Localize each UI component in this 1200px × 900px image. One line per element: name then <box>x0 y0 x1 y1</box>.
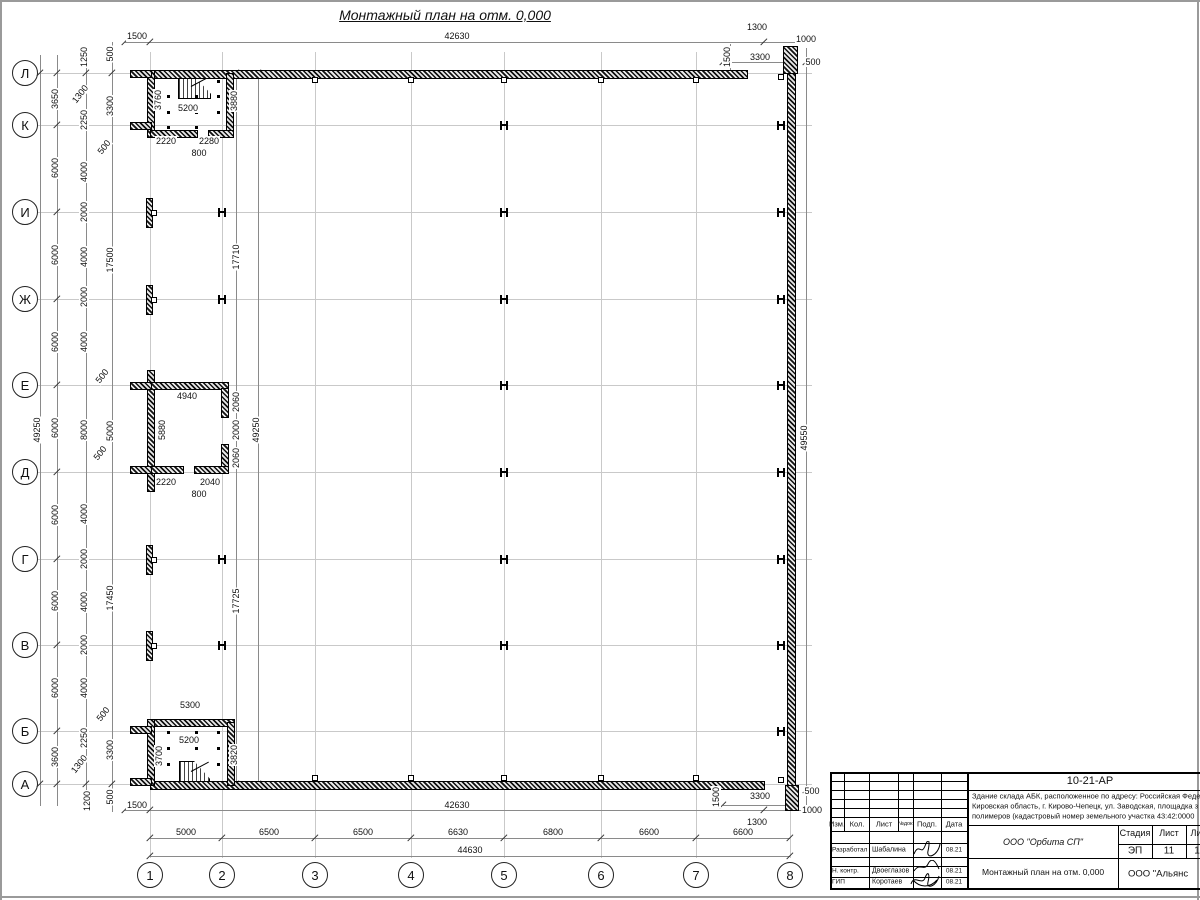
dim-label: 3700 <box>154 745 164 767</box>
dim-label: 1500 <box>126 800 148 810</box>
sheet-border-bottom <box>0 896 1200 898</box>
name-ncontrol: Двоеглазов <box>872 868 909 875</box>
dim-label: 1000 <box>795 34 817 44</box>
pile-dot <box>217 731 220 734</box>
dim-label: 500 <box>105 45 115 62</box>
wall <box>130 122 152 130</box>
steel-column-symbol <box>500 295 508 304</box>
name-developer: Шабалина <box>872 847 906 854</box>
titleblock-line <box>830 781 968 782</box>
steel-column-symbol <box>500 381 508 390</box>
dim-label: 500 <box>95 137 113 157</box>
dim-label: 17450 <box>105 584 115 611</box>
dim-label: 6000 <box>50 244 60 266</box>
doc-number: 10-21-АР <box>1067 775 1113 787</box>
dim-label: 800 <box>190 148 207 158</box>
dim-label: 2220 <box>155 136 177 146</box>
titleblock-line <box>830 808 968 809</box>
pile-dot <box>195 95 198 98</box>
dimension-line <box>125 42 816 43</box>
date-ncontrol: 08.21 <box>946 868 962 875</box>
wall-pilaster <box>408 775 414 781</box>
dim-label: 500 <box>94 704 112 724</box>
dim-label: 1200 <box>82 790 92 812</box>
steel-column-symbol <box>777 121 785 130</box>
sheets-value: 1 <box>1194 846 1200 857</box>
titleblock-line <box>830 843 968 844</box>
sheet-name: Монтажный план на отм. 0,000 <box>982 867 1104 877</box>
role-ncontrol: Н. контр. <box>832 868 859 875</box>
dim-label: 2220 <box>155 477 177 487</box>
design-org: ООО "Орбита СП" <box>1003 837 1083 847</box>
dim-label: 6500 <box>258 827 280 837</box>
sheet-value: 11 <box>1164 846 1174 857</box>
dim-label: 3300 <box>105 95 115 117</box>
wall <box>130 70 152 78</box>
wall <box>150 382 229 390</box>
dim-label: 4000 <box>79 246 89 268</box>
wall-pilaster <box>312 77 318 83</box>
dim-label: 3760 <box>153 89 163 111</box>
axis-circle-col-5: 5 <box>491 862 517 888</box>
wall <box>785 785 799 811</box>
wall-pilaster <box>151 557 157 563</box>
wall-pilaster <box>501 77 507 83</box>
dim-label: 2040 <box>199 477 221 487</box>
dim-label: 1300 <box>746 22 768 32</box>
dimension-line <box>723 805 790 806</box>
dim-label: 6000 <box>50 331 60 353</box>
titleblock-line <box>830 831 968 832</box>
dim-label: 3820 <box>229 744 239 766</box>
pile-dot <box>167 95 170 98</box>
steel-column-symbol <box>777 555 785 564</box>
drawing-title: Монтажный план на отм. 0,000 <box>339 7 551 23</box>
dim-label: 1250 <box>79 46 89 68</box>
titleblock-line <box>830 857 968 858</box>
grid-line-col-5 <box>504 52 505 858</box>
steel-column-symbol <box>777 381 785 390</box>
dim-label: 42630 <box>443 800 470 810</box>
wall <box>194 466 229 474</box>
dim-label: 5880 <box>157 419 167 441</box>
wall-pilaster <box>151 643 157 649</box>
dim-label: 3880 <box>229 90 239 112</box>
dim-label: 6800 <box>542 827 564 837</box>
pile-dot <box>217 95 220 98</box>
titleblock-border <box>830 772 1200 774</box>
axis-circle-row-Е: Е <box>12 372 38 398</box>
axis-circle-row-Л: Л <box>12 60 38 86</box>
steel-column-symbol <box>500 121 508 130</box>
dim-label: 4000 <box>79 677 89 699</box>
dim-label: 4000 <box>79 591 89 613</box>
axis-circle-row-И: И <box>12 199 38 225</box>
role-gip: ГИП <box>832 879 845 886</box>
titleblock-line <box>968 858 1200 859</box>
col-data: Дата <box>946 820 963 829</box>
dim-label: 17725 <box>231 587 241 614</box>
steel-column-symbol <box>500 641 508 650</box>
dim-label: 2060 <box>231 447 241 469</box>
dim-label: 17710 <box>231 243 241 270</box>
dim-label: 6600 <box>732 827 754 837</box>
dim-label: 3600 <box>50 746 60 768</box>
dim-label: 4000 <box>79 503 89 525</box>
axis-circle-col-3: 3 <box>302 862 328 888</box>
axis-circle-row-Г: Г <box>12 546 38 572</box>
dim-label: 800 <box>190 489 207 499</box>
wall <box>783 46 798 74</box>
wall-pilaster <box>693 775 699 781</box>
wall-pilaster <box>151 210 157 216</box>
dim-label: 5200 <box>177 103 199 113</box>
dim-label: 2250 <box>79 109 89 131</box>
pile-dot <box>167 747 170 750</box>
dim-label: 3300 <box>749 52 771 62</box>
dim-label: 6630 <box>447 827 469 837</box>
dim-label: 6000 <box>50 417 60 439</box>
dim-label: 500 <box>804 57 821 67</box>
steel-column-symbol <box>500 208 508 217</box>
wall <box>787 48 796 792</box>
wall <box>130 466 152 474</box>
dim-label: 49550 <box>799 424 809 451</box>
dim-label: 1300 <box>69 82 90 106</box>
sheet-border-top <box>0 0 1200 2</box>
dim-label: 2250 <box>79 727 89 749</box>
dim-label: 3300 <box>105 739 115 761</box>
wall <box>130 778 152 786</box>
wall <box>150 719 235 727</box>
axis-circle-row-Б: Б <box>12 718 38 744</box>
dim-label: 2000 <box>231 419 241 441</box>
dim-label: 2280 <box>198 136 220 146</box>
dim-label: 1500 <box>711 786 721 808</box>
steel-column-symbol <box>777 208 785 217</box>
sheet-border-left <box>0 0 2 900</box>
wall <box>150 70 748 79</box>
signature-gip <box>908 872 942 888</box>
date-developer: 08.21 <box>946 847 962 854</box>
wall-pilaster <box>598 775 604 781</box>
pile-dot <box>195 126 198 129</box>
dim-label: 6000 <box>50 504 60 526</box>
date-gip: 08.21 <box>946 879 962 886</box>
steel-column-symbol <box>777 641 785 650</box>
sheet-border-right <box>1197 0 1199 900</box>
dim-label: 6000 <box>50 677 60 699</box>
wall-pilaster <box>598 77 604 83</box>
dim-label: 2000 <box>79 634 89 656</box>
dim-tick <box>786 852 793 859</box>
axis-circle-col-2: 2 <box>209 862 235 888</box>
wall <box>150 466 184 474</box>
titleblock-line <box>830 790 968 791</box>
pile-dot <box>167 111 170 114</box>
dimension-line <box>723 62 790 63</box>
dim-label: 1500 <box>126 31 148 41</box>
dim-label: 500 <box>105 788 115 805</box>
steel-column-symbol <box>500 555 508 564</box>
dim-label: 44630 <box>456 845 483 855</box>
description-line1: Здание склада АБК, расположенное по адре… <box>972 792 1200 801</box>
axis-circle-row-В: В <box>12 632 38 658</box>
axis-circle-col-6: 6 <box>588 862 614 888</box>
dim-label: 5000 <box>175 827 197 837</box>
dim-label: 1000 <box>801 805 823 815</box>
dimension-line <box>125 810 822 811</box>
wall-pilaster <box>778 74 784 80</box>
dim-label: 6500 <box>352 827 374 837</box>
axis-circle-row-А: А <box>12 771 38 797</box>
dim-label: 42630 <box>443 31 470 41</box>
wall-pilaster <box>151 297 157 303</box>
grid-line-col-6 <box>601 52 602 858</box>
wall-pilaster <box>501 775 507 781</box>
titleblock-line <box>830 799 968 800</box>
steel-column-symbol <box>218 295 226 304</box>
sheets-label: Ли <box>1191 828 1200 838</box>
dim-label: 4000 <box>79 331 89 353</box>
axis-circle-col-8: 8 <box>777 862 803 888</box>
axis-circle-row-Д: Д <box>12 459 38 485</box>
role-developer: Разработал <box>832 847 867 854</box>
steel-column-symbol <box>777 468 785 477</box>
dim-label: 17500 <box>105 246 115 273</box>
axis-circle-row-Ж: Ж <box>12 286 38 312</box>
dim-label: 3650 <box>50 88 60 110</box>
pile-dot <box>217 763 220 766</box>
dim-label: 5200 <box>178 735 200 745</box>
steel-column-symbol <box>218 555 226 564</box>
pile-dot <box>167 126 170 129</box>
col-ndok: №док. <box>898 821 914 827</box>
dim-label: 49250 <box>251 416 261 443</box>
axis-circle-col-1: 1 <box>137 862 163 888</box>
steel-column-symbol <box>218 208 226 217</box>
axis-circle-row-К: К <box>12 112 38 138</box>
stage-label: Стадия <box>1120 828 1151 838</box>
col-kol: Кол. <box>850 820 865 829</box>
grid-line-col-3 <box>315 52 316 858</box>
grid-line-col-7 <box>696 52 697 858</box>
dim-label: 2000 <box>79 286 89 308</box>
wall <box>130 382 152 390</box>
steel-column-symbol <box>777 295 785 304</box>
pile-dot <box>217 111 220 114</box>
steel-column-symbol <box>500 468 508 477</box>
titleblock-line <box>1186 825 1187 858</box>
wall <box>221 388 229 418</box>
pile-dot <box>167 731 170 734</box>
wall-pilaster <box>408 77 414 83</box>
dim-label: 4940 <box>176 391 198 401</box>
dim-label: 5000 <box>105 420 115 442</box>
dim-label: 1300 <box>746 817 768 827</box>
signature-developer <box>912 841 942 857</box>
wall-pilaster <box>778 777 784 783</box>
steel-column-symbol <box>218 641 226 650</box>
titleblock-line <box>1152 825 1153 858</box>
col-list: Лист <box>876 820 892 829</box>
dim-label: 49250 <box>32 416 42 443</box>
description-line3: полимеров (кадастровый номер земельного … <box>972 812 1194 821</box>
dim-label: 3300 <box>749 791 771 801</box>
dim-label: 5300 <box>179 700 201 710</box>
dim-label: 1500 <box>722 46 732 68</box>
dim-label: 6000 <box>50 157 60 179</box>
contractor-org: ООО "Альянс <box>1128 869 1188 880</box>
pile-dot <box>195 731 198 734</box>
axis-circle-col-7: 7 <box>683 862 709 888</box>
steel-column-symbol <box>777 727 785 736</box>
name-gip: Коротаев <box>872 879 902 886</box>
col-podp: Подп. <box>917 820 937 829</box>
dim-label: 2000 <box>79 548 89 570</box>
drawing-sheet: Монтажный план на отм. 0,000 10-21-АР Зд… <box>0 0 1200 900</box>
pile-dot <box>195 747 198 750</box>
stage-value: ЭП <box>1128 846 1142 857</box>
dim-label: 500 <box>803 786 820 796</box>
wall-pilaster <box>693 77 699 83</box>
sheet-label: Лист <box>1159 828 1179 838</box>
pile-dot <box>167 763 170 766</box>
wall-pilaster <box>312 775 318 781</box>
pile-dot <box>217 747 220 750</box>
titleblock-line <box>968 825 1200 826</box>
dim-label: 2000 <box>79 201 89 223</box>
titleblock-line <box>869 772 870 888</box>
pile-dot <box>217 80 220 83</box>
dim-label: 4000 <box>79 161 89 183</box>
dim-label: 2060 <box>231 391 241 413</box>
col-izm: Изм. <box>829 820 845 829</box>
wall <box>130 726 152 734</box>
titleblock-line <box>830 817 968 818</box>
description-line2: Кировская область, г. Кирово-Чепецк, ул.… <box>972 802 1198 811</box>
titleblock-border <box>830 888 1200 890</box>
grid-line-col-4 <box>411 52 412 858</box>
dim-label: 6600 <box>638 827 660 837</box>
dim-label: 500 <box>93 366 111 386</box>
dim-label: 6000 <box>50 590 60 612</box>
dim-label: 8000 <box>79 419 89 441</box>
dim-label: 500 <box>91 443 109 463</box>
dimension-line <box>150 856 790 857</box>
axis-circle-col-4: 4 <box>398 862 424 888</box>
wall <box>150 781 765 790</box>
